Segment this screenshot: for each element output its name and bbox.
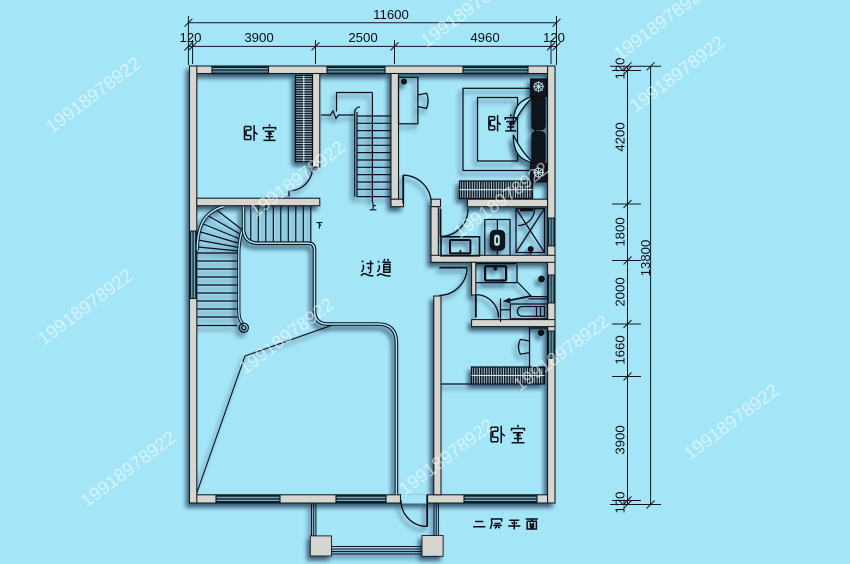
svg-text:120: 120 — [543, 30, 565, 45]
svg-text:3900: 3900 — [613, 425, 628, 454]
svg-text:11600: 11600 — [373, 7, 409, 22]
svg-text:1800: 1800 — [613, 217, 628, 246]
svg-text:2500: 2500 — [348, 30, 377, 45]
svg-text:4200: 4200 — [613, 122, 628, 151]
svg-text:1660: 1660 — [613, 335, 628, 364]
svg-text:13800: 13800 — [638, 240, 653, 277]
svg-text:120: 120 — [613, 491, 628, 513]
svg-text:4960: 4960 — [470, 30, 499, 45]
svg-text:3900: 3900 — [244, 30, 273, 45]
svg-text:120: 120 — [179, 30, 201, 45]
svg-text:2000: 2000 — [613, 277, 628, 306]
